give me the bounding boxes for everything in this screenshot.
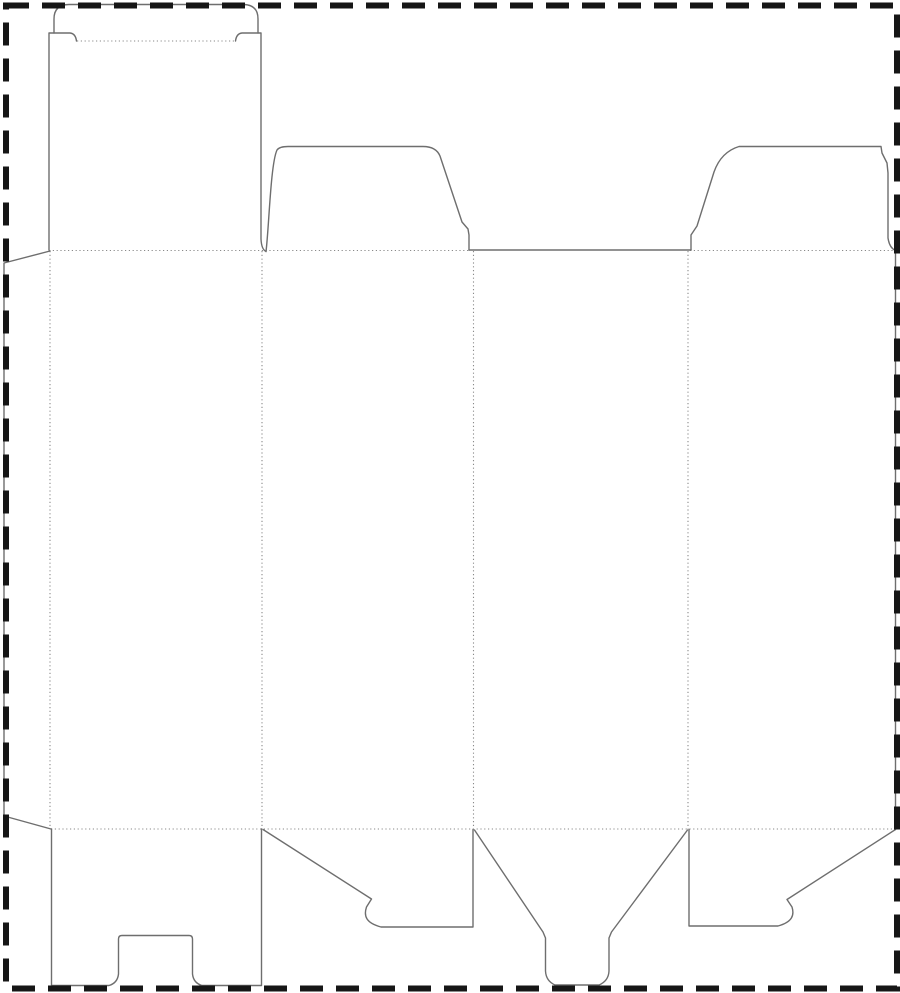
sheet-background	[0, 0, 900, 993]
box-dieline-drawing	[0, 0, 900, 993]
dieline-canvas	[0, 0, 900, 993]
